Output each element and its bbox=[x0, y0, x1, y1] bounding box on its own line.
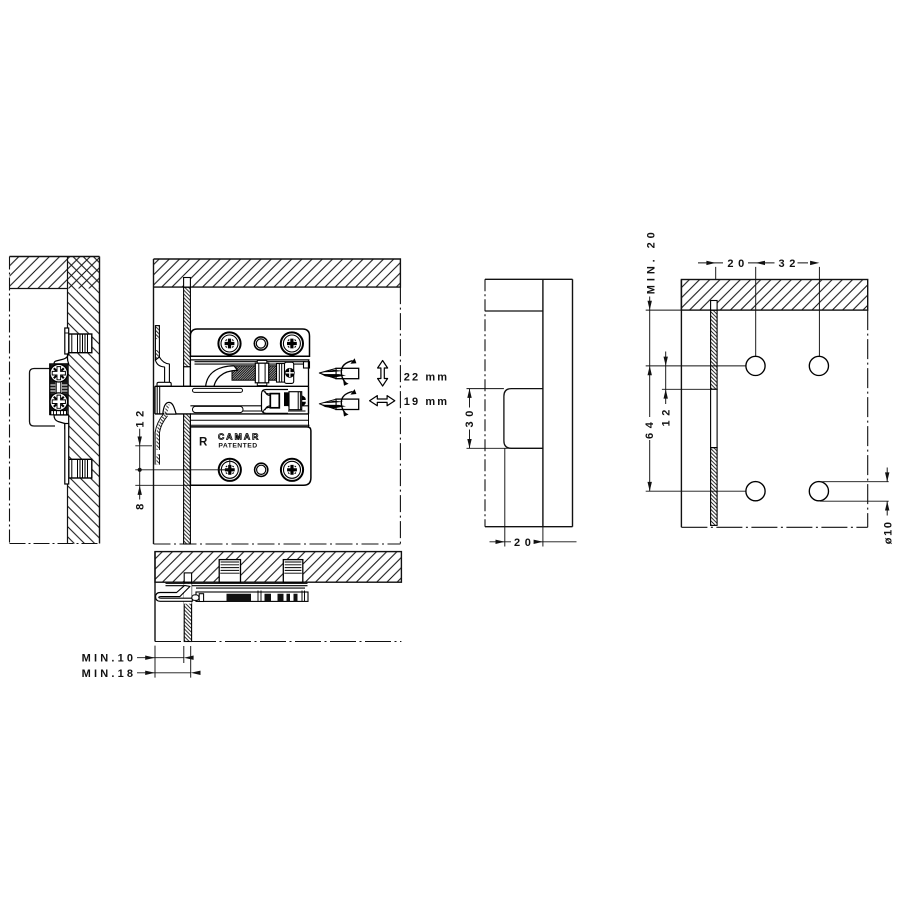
svg-text:CAMAR: CAMAR bbox=[218, 432, 260, 442]
svg-text:MIN.18: MIN.18 bbox=[82, 668, 137, 680]
svg-text:19 mm: 19 mm bbox=[404, 396, 449, 408]
svg-text:ø10: ø10 bbox=[883, 520, 895, 544]
svg-text:12: 12 bbox=[134, 406, 146, 427]
svg-text:PATENTED: PATENTED bbox=[218, 443, 257, 450]
svg-text:32: 32 bbox=[779, 258, 800, 270]
svg-text:12: 12 bbox=[660, 405, 672, 426]
svg-text:20: 20 bbox=[727, 258, 748, 270]
svg-text:20: 20 bbox=[514, 537, 535, 549]
svg-text:R: R bbox=[199, 437, 208, 449]
svg-text:30: 30 bbox=[464, 406, 476, 427]
svg-text:64: 64 bbox=[644, 418, 656, 439]
svg-text:MIN. 20: MIN. 20 bbox=[646, 228, 658, 294]
svg-text:22 mm: 22 mm bbox=[404, 372, 449, 384]
svg-text:8: 8 bbox=[134, 499, 146, 510]
svg-text:MIN.10: MIN.10 bbox=[82, 653, 137, 665]
